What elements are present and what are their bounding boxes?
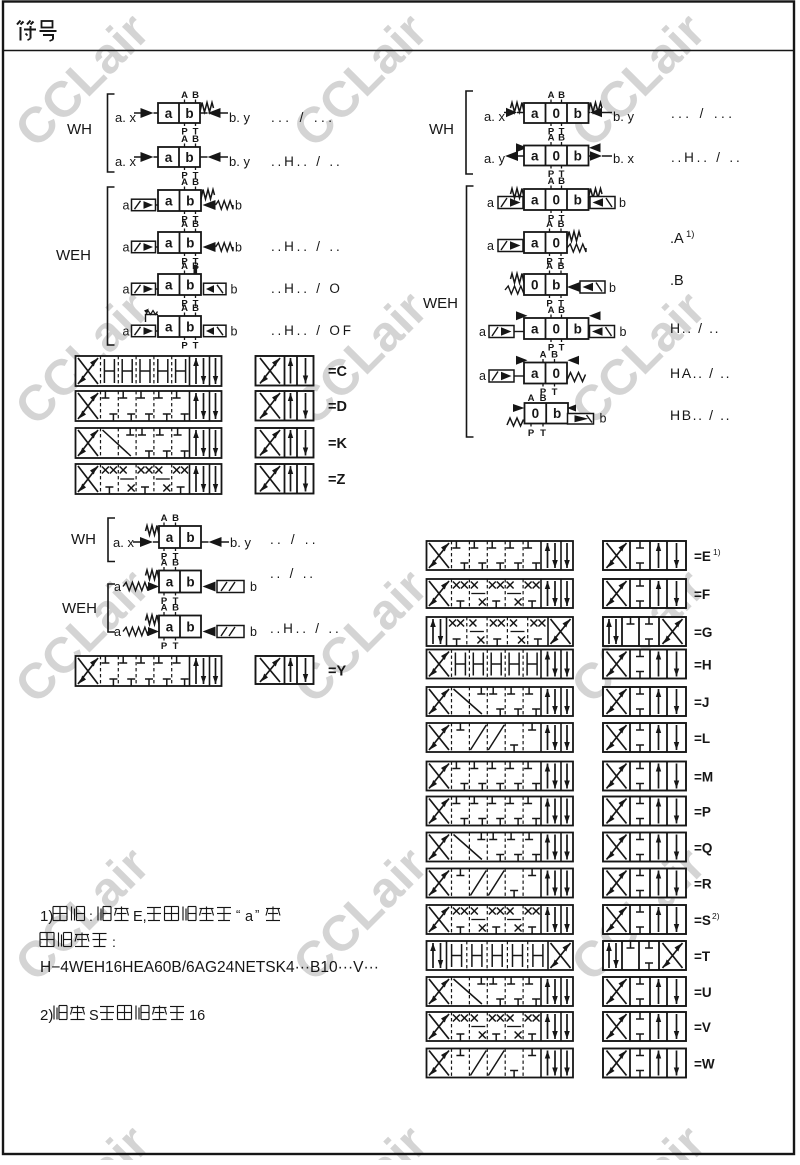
svg-text:A: A [540, 350, 547, 361]
svg-text:b: b [620, 325, 627, 339]
svg-text:a: a [166, 620, 174, 635]
svg-text:.. / ..: .. / .. [270, 532, 319, 547]
svg-text:a: a [114, 625, 121, 639]
svg-text:b: b [250, 580, 257, 594]
svg-text:a: a [165, 106, 173, 121]
svg-text:b: b [574, 322, 582, 337]
svg-text:P: P [528, 428, 535, 439]
svg-text:B: B [192, 134, 199, 145]
svg-text:a: a [165, 278, 173, 293]
svg-text:a: a [479, 369, 486, 383]
svg-text:a: a [487, 196, 494, 210]
svg-text:=E: =E [694, 549, 711, 564]
svg-text:..H.. / ..: ..H.. / .. [671, 150, 743, 165]
svg-text:=R: =R [694, 877, 712, 892]
svg-text:... / ...: ... / ... [671, 106, 735, 121]
svg-text:a. y: a. y [484, 151, 505, 166]
svg-text:T: T [540, 428, 546, 439]
svg-text:a. x: a. x [113, 535, 134, 550]
svg-text:0: 0 [552, 236, 560, 251]
svg-text:=D: =D [328, 399, 347, 415]
svg-text:A: A [548, 305, 555, 316]
svg-text:b: b [186, 530, 194, 545]
svg-text:A: A [181, 90, 188, 101]
svg-text:B: B [192, 177, 199, 188]
svg-text:a: a [531, 193, 539, 208]
svg-text:=W: =W [694, 1057, 715, 1072]
svg-text:b: b [186, 278, 194, 293]
svg-text:=S: =S [694, 913, 711, 928]
svg-text:a: a [531, 236, 539, 251]
svg-text:..H.. / O: ..H.. / O [271, 281, 343, 296]
svg-text:T: T [193, 341, 199, 352]
svg-text:P: P [161, 641, 168, 652]
svg-text:A: A [181, 219, 188, 230]
svg-text:=J: =J [694, 695, 709, 710]
svg-text:=C: =C [328, 364, 347, 380]
svg-text:0: 0 [552, 149, 560, 164]
svg-text:.A: .A [670, 231, 684, 247]
svg-text:=V: =V [694, 1020, 711, 1035]
svg-text:B: B [558, 133, 565, 144]
svg-text:”: ” [255, 907, 259, 922]
svg-text:b: b [185, 150, 193, 165]
svg-text:“: “ [236, 907, 240, 922]
svg-text:A: A [548, 90, 555, 101]
svg-text:a: a [479, 325, 486, 339]
svg-text:a: a [123, 325, 130, 339]
svg-text:0: 0 [552, 106, 560, 121]
svg-text:A: A [161, 513, 168, 524]
svg-text:0: 0 [532, 406, 540, 421]
svg-text:HB.. / ..: HB.. / .. [670, 407, 731, 423]
svg-text:..H.. / OF: ..H.. / OF [271, 323, 354, 338]
svg-text:b. x: b. x [613, 151, 634, 166]
svg-text:B: B [172, 513, 179, 524]
svg-text:A: A [181, 177, 188, 188]
svg-text:B: B [172, 558, 179, 569]
svg-text:b. y: b. y [229, 110, 250, 125]
svg-text:..H.. / ..: ..H.. / .. [271, 239, 343, 254]
svg-text:WEH: WEH [56, 247, 91, 264]
svg-text:.. / ..: .. / .. [270, 566, 316, 581]
svg-text:b. y: b. y [613, 109, 634, 124]
svg-text:A: A [161, 558, 168, 569]
svg-text:0: 0 [552, 322, 560, 337]
svg-text:..H.. / ..: ..H.. / .. [271, 154, 343, 169]
svg-text:B: B [192, 303, 199, 314]
svg-text:a. x: a. x [484, 109, 505, 124]
svg-text:=F: =F [694, 587, 710, 602]
svg-text:b: b [186, 575, 194, 590]
svg-text:B: B [558, 261, 565, 272]
svg-text:T: T [559, 343, 565, 354]
svg-text:S: S [89, 1008, 99, 1024]
svg-text:b: b [574, 106, 582, 121]
svg-text:a: a [531, 366, 539, 381]
svg-text:B: B [558, 176, 565, 187]
svg-text:..H.. / ..: ..H.. / .. [270, 621, 342, 636]
svg-text:16: 16 [189, 1008, 205, 1024]
svg-text:WEH: WEH [62, 600, 97, 617]
svg-text:a: a [166, 530, 174, 545]
svg-text:b: b [231, 325, 238, 339]
svg-text:a: a [123, 283, 130, 297]
svg-text:HA.. / ..: HA.. / .. [670, 365, 731, 381]
svg-text:B: B [192, 90, 199, 101]
svg-text:WEH: WEH [423, 295, 458, 312]
svg-text:B: B [172, 603, 179, 614]
svg-text:B: B [558, 90, 565, 101]
svg-text:a: a [165, 150, 173, 165]
svg-text:A: A [161, 603, 168, 614]
svg-text:a. x: a. x [115, 110, 136, 125]
svg-text:b: b [574, 193, 582, 208]
svg-text:=H: =H [694, 658, 712, 673]
svg-text:.B: .B [670, 273, 684, 289]
svg-text:B: B [551, 350, 558, 361]
svg-text:=K: =K [328, 436, 347, 452]
svg-text:a. x: a. x [115, 154, 136, 169]
svg-text:=Q: =Q [694, 841, 712, 856]
svg-text:1): 1) [40, 908, 53, 925]
svg-text:WH: WH [71, 531, 96, 548]
svg-text:b: b [186, 236, 194, 251]
svg-text:b: b [552, 278, 560, 293]
svg-text:A: A [181, 134, 188, 145]
svg-text:A: A [181, 303, 188, 314]
svg-text:b: b [250, 625, 257, 639]
svg-text::: : [112, 934, 116, 950]
svg-text:a: a [165, 236, 173, 251]
svg-text:b: b [185, 106, 193, 121]
svg-text:b: b [619, 196, 626, 210]
svg-text:2): 2) [40, 1007, 53, 1024]
svg-text:a: a [123, 241, 130, 255]
svg-text:a: a [487, 239, 494, 253]
svg-text:B: B [558, 219, 565, 230]
svg-text:=P: =P [694, 805, 711, 820]
svg-text:a: a [245, 909, 254, 925]
svg-text:A: A [181, 261, 188, 272]
svg-text:P: P [181, 341, 188, 352]
svg-text:b: b [235, 199, 242, 213]
svg-text:A: A [546, 219, 553, 230]
svg-text:b: b [574, 149, 582, 164]
svg-text:0: 0 [552, 193, 560, 208]
svg-text:H−4WEH16HEA60B/6AG24NETSK4···B: H−4WEH16HEA60B/6AG24NETSK4···B10···V··· [40, 959, 379, 976]
svg-text:H.. / ..: H.. / .. [670, 320, 720, 336]
svg-text:T: T [173, 641, 179, 652]
svg-text:=T: =T [694, 949, 711, 964]
svg-text:b: b [186, 620, 194, 635]
svg-text:b. y: b. y [229, 154, 250, 169]
svg-text:1): 1) [713, 547, 721, 557]
svg-text:1): 1) [686, 229, 694, 240]
svg-text:b. y: b. y [230, 535, 251, 550]
svg-text:b: b [553, 406, 561, 421]
svg-text:b: b [609, 281, 616, 295]
svg-text:=G: =G [694, 625, 712, 640]
svg-text:=M: =M [694, 770, 713, 785]
svg-text:a: a [165, 194, 173, 209]
svg-text:2): 2) [712, 911, 720, 921]
svg-text::: : [89, 908, 93, 924]
svg-text:E,: E, [133, 909, 147, 925]
svg-text:B: B [192, 219, 199, 230]
svg-text:a: a [123, 199, 130, 213]
svg-text:... / ...: ... / ... [271, 110, 335, 125]
svg-text:=U: =U [694, 985, 712, 1000]
svg-text:=Z: =Z [328, 472, 345, 488]
svg-text:b: b [186, 194, 194, 209]
svg-text:WH: WH [67, 121, 92, 138]
svg-text:a: a [531, 322, 539, 337]
svg-text:0: 0 [552, 366, 560, 381]
svg-text:B: B [558, 305, 565, 316]
svg-text:WH: WH [429, 121, 454, 138]
svg-text:=Y: =Y [328, 664, 346, 680]
svg-text:b: b [600, 412, 607, 426]
svg-text:a: a [166, 575, 174, 590]
svg-text:a: a [114, 580, 121, 594]
svg-text:0: 0 [531, 278, 539, 293]
svg-text:b: b [231, 283, 238, 297]
svg-text:A: A [548, 176, 555, 187]
svg-text:b: b [235, 241, 242, 255]
svg-text:b: b [186, 320, 194, 335]
svg-text:A: A [548, 133, 555, 144]
svg-text:T: T [552, 387, 558, 398]
svg-text:a: a [531, 149, 539, 164]
svg-text:a: a [531, 106, 539, 121]
svg-text:a: a [165, 320, 173, 335]
svg-text:=L: =L [694, 731, 710, 746]
svg-text:A: A [546, 261, 553, 272]
